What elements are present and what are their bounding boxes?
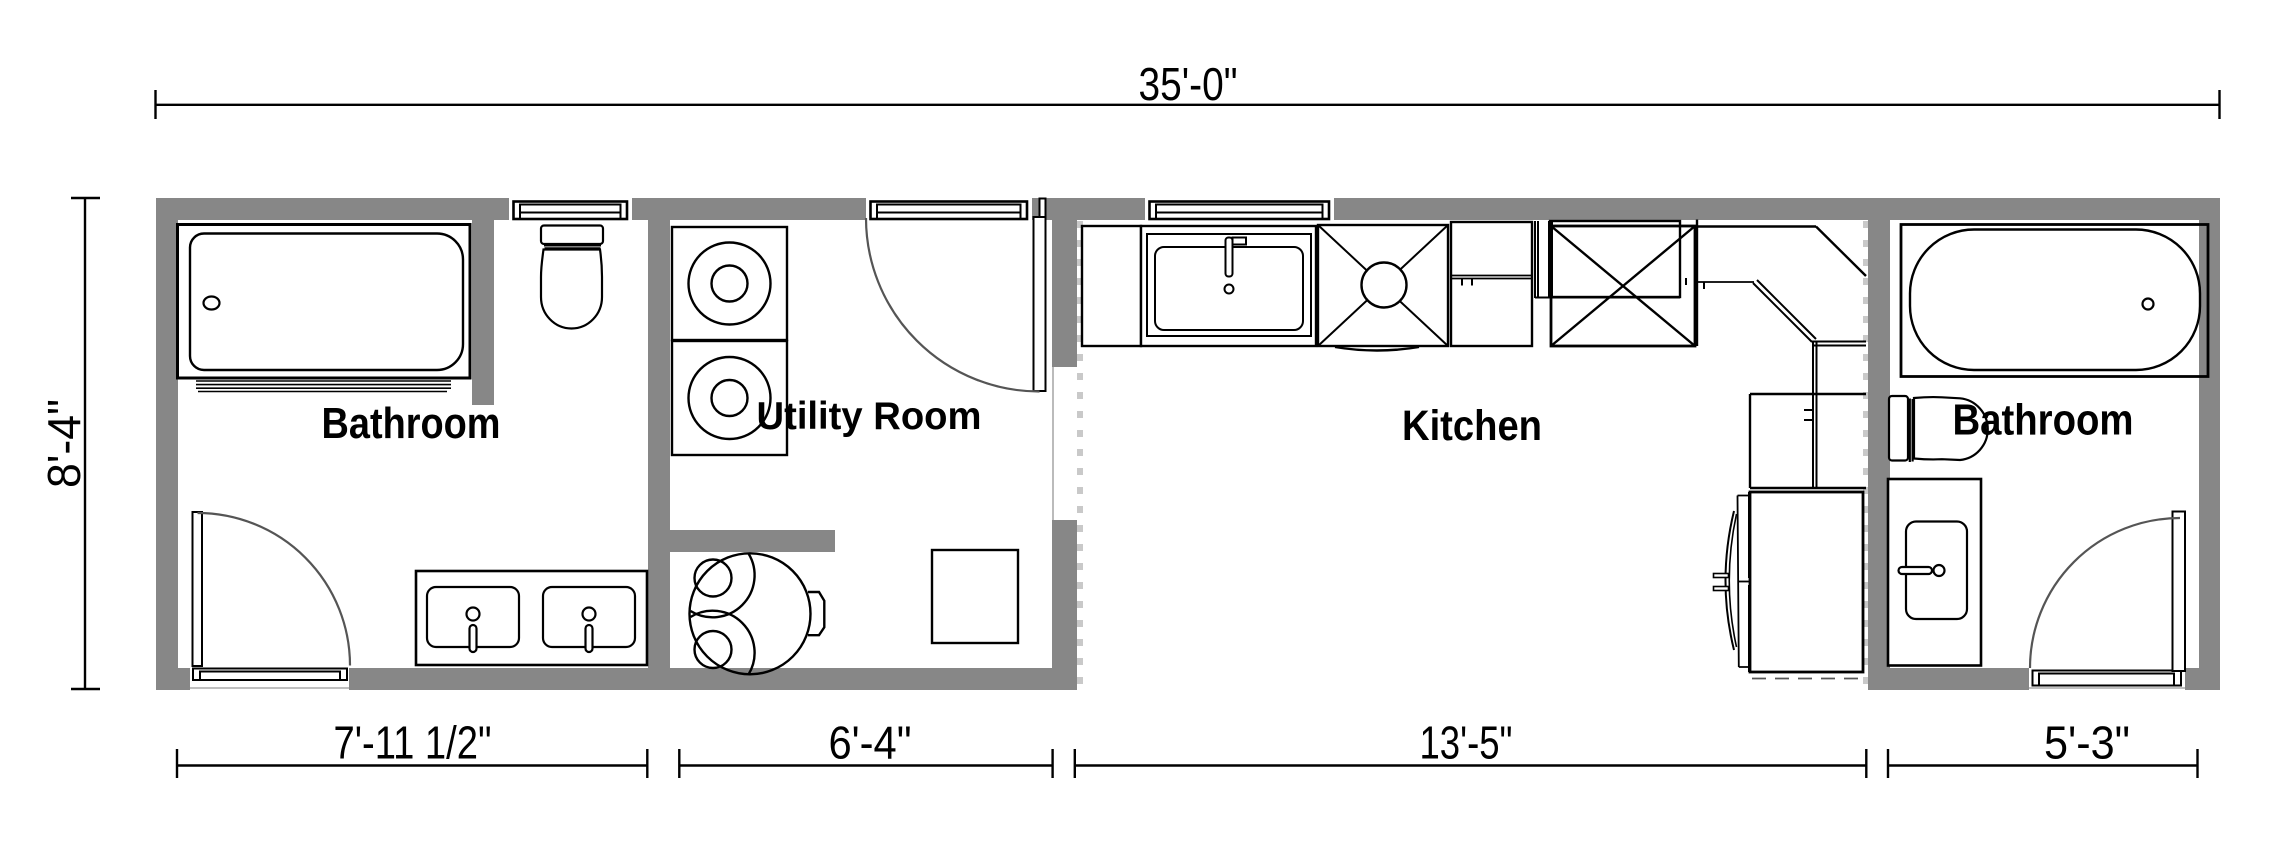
- svg-text:5'-3": 5'-3": [2044, 717, 2130, 769]
- svg-text:Kitchen: Kitchen: [1402, 402, 1542, 450]
- svg-text:6'-4": 6'-4": [829, 717, 912, 769]
- svg-text:Bathroom: Bathroom: [322, 399, 501, 448]
- svg-text:Bathroom: Bathroom: [1953, 396, 2134, 445]
- svg-text:35'-0": 35'-0": [1139, 58, 1238, 110]
- svg-text:13'-5": 13'-5": [1420, 717, 1513, 769]
- svg-text:Utility Room: Utility Room: [757, 395, 982, 438]
- svg-text:8'-4": 8'-4": [38, 399, 90, 488]
- svg-text:7'-11 1/2": 7'-11 1/2": [334, 717, 492, 769]
